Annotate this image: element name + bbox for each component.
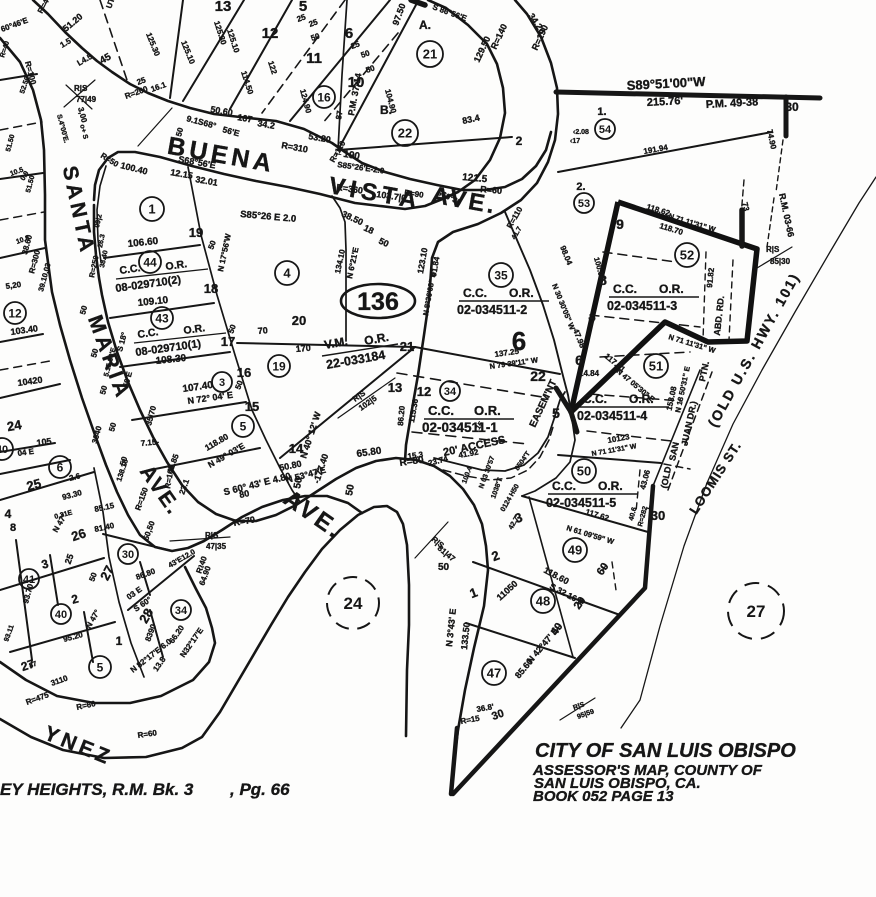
- svg-text:50.60: 50.60: [210, 104, 234, 118]
- svg-text:C.C.: C.C.: [463, 286, 487, 300]
- svg-text:16: 16: [317, 90, 331, 104]
- svg-text:3110: 3110: [50, 673, 70, 688]
- svg-text:C.C.: C.C.: [552, 479, 576, 493]
- svg-text:95.20: 95.20: [62, 630, 84, 644]
- svg-text:170: 170: [295, 343, 311, 354]
- svg-text:24: 24: [344, 594, 363, 613]
- svg-text:R=15: R=15: [460, 714, 481, 726]
- svg-text:N 6°21'E: N 6°21'E: [345, 246, 361, 280]
- svg-text:115.36: 115.36: [407, 398, 420, 424]
- svg-text:51.20: 51.20: [61, 11, 85, 33]
- svg-text:30: 30: [785, 100, 799, 114]
- svg-text:85.15: 85.15: [94, 501, 116, 514]
- svg-text:0124 H50: 0124 H50: [500, 483, 521, 513]
- svg-text:77|49: 77|49: [76, 95, 97, 104]
- svg-text:40: 40: [55, 609, 67, 621]
- svg-text:EASEM'NT: EASEM'NT: [528, 378, 560, 429]
- svg-text:26: 26: [69, 525, 87, 544]
- svg-text:17: 17: [221, 334, 235, 349]
- svg-text:47|35: 47|35: [206, 542, 227, 551]
- svg-text:R=70: R=70: [233, 514, 256, 528]
- svg-text:50: 50: [344, 483, 357, 496]
- svg-text:87: 87: [28, 661, 38, 670]
- svg-text:7: 7: [588, 314, 596, 330]
- svg-text:O.R.: O.R.: [165, 258, 188, 273]
- svg-text:25: 25: [350, 39, 362, 51]
- svg-text:S89°51'00"W: S89°51'00"W: [626, 74, 706, 93]
- svg-text:1: 1: [116, 634, 123, 648]
- svg-text:O.R.: O.R.: [659, 282, 684, 296]
- svg-text:86.20: 86.20: [396, 405, 407, 426]
- svg-text:20: 20: [292, 313, 306, 328]
- svg-text:6: 6: [57, 460, 64, 474]
- svg-text:50: 50: [87, 571, 99, 583]
- svg-text:93.30: 93.30: [61, 488, 83, 502]
- svg-text:134.10: 134.10: [333, 248, 347, 274]
- svg-text:3: 3: [40, 556, 50, 571]
- svg-text:S85°26'E-2.0: S85°26'E-2.0: [337, 160, 386, 176]
- svg-text:65.80: 65.80: [356, 446, 383, 460]
- svg-text:25: 25: [25, 476, 43, 494]
- svg-text:R|S: R|S: [74, 84, 88, 93]
- svg-text:12: 12: [262, 25, 279, 42]
- svg-text:O.R.: O.R.: [598, 479, 623, 493]
- svg-text:02-034511-4: 02-034511-4: [577, 409, 647, 423]
- svg-text:1: 1: [148, 202, 155, 217]
- svg-text:C.C.: C.C.: [137, 326, 160, 341]
- svg-text:12: 12: [8, 306, 22, 320]
- svg-text:167: 167: [237, 112, 254, 124]
- svg-text:6: 6: [575, 352, 583, 368]
- svg-text:C.C.: C.C.: [119, 262, 142, 277]
- svg-text:51.50: 51.50: [5, 134, 16, 153]
- svg-text:53.20: 53.20: [308, 131, 332, 145]
- svg-text:6: 6: [345, 25, 353, 42]
- svg-text:R=60: R=60: [480, 184, 503, 196]
- svg-text:50: 50: [78, 304, 89, 315]
- svg-text:47.98: 47.98: [571, 327, 587, 349]
- svg-text:19: 19: [189, 225, 203, 240]
- svg-text:5: 5: [240, 419, 247, 433]
- svg-text:2: 2: [70, 591, 80, 606]
- svg-text:18: 18: [362, 223, 375, 236]
- svg-text:26.3: 26.3: [97, 234, 107, 249]
- svg-text:121.5: 121.5: [462, 172, 488, 185]
- svg-text:25: 25: [308, 17, 320, 29]
- svg-text:C.C.: C.C.: [428, 403, 454, 418]
- svg-text:122: 122: [266, 60, 279, 76]
- svg-text:+: +: [647, 504, 653, 515]
- svg-text:53: 53: [578, 198, 590, 210]
- svg-text:15: 15: [245, 399, 259, 414]
- svg-text:N 40° 12' W: N 40° 12' W: [298, 410, 323, 459]
- svg-text:2.: 2.: [576, 181, 585, 193]
- svg-text:54: 54: [599, 124, 612, 136]
- svg-text:3,00: 3,00: [76, 106, 89, 124]
- svg-text:4: 4: [5, 507, 12, 521]
- svg-text:125.30: 125.30: [144, 31, 162, 58]
- svg-text:18: 18: [204, 281, 218, 296]
- svg-text:32.01: 32.01: [195, 174, 219, 188]
- svg-text:9: 9: [616, 216, 624, 232]
- svg-text:50: 50: [226, 323, 238, 335]
- svg-text:133.50: 133.50: [459, 622, 472, 650]
- svg-text:125.10: 125.10: [179, 39, 197, 66]
- svg-text:81.40: 81.40: [94, 521, 116, 534]
- svg-text:50: 50: [206, 239, 218, 251]
- svg-text:14.84: 14.84: [579, 369, 600, 378]
- svg-text:09|2: 09|2: [94, 214, 104, 229]
- svg-text:22-033184: 22-033184: [325, 348, 386, 372]
- svg-text:R.M. 03-66: R.M. 03-66: [777, 192, 796, 238]
- svg-text:50,50: 50,50: [141, 519, 156, 541]
- svg-text:123.10: 123.10: [415, 247, 429, 275]
- svg-text:10420: 10420: [17, 375, 43, 388]
- svg-text:R=190: R=190: [530, 23, 550, 51]
- svg-text:o+ S: o+ S: [78, 124, 89, 141]
- svg-text:215.76': 215.76': [647, 95, 684, 109]
- svg-text:2: 2: [489, 547, 501, 564]
- svg-text:N 8°36'08" E: N 8°36'08" E: [421, 272, 437, 317]
- svg-text:137.25: 137.25: [494, 347, 520, 359]
- svg-text:16: 16: [237, 365, 251, 380]
- svg-text:83.4: 83.4: [461, 113, 480, 126]
- svg-text:R=80: R=80: [399, 455, 425, 469]
- svg-text:124.90: 124.90: [298, 88, 313, 114]
- svg-text:50: 50: [438, 562, 450, 573]
- svg-text:23.74: 23.74: [427, 454, 449, 468]
- svg-text:L4.5: L4.5: [76, 52, 95, 68]
- svg-text:13: 13: [215, 0, 232, 15]
- svg-text:4: 4: [283, 266, 291, 281]
- svg-text:30: 30: [122, 549, 134, 561]
- svg-text:N 17°56'W: N 17°56'W: [216, 232, 233, 272]
- svg-text:106.60: 106.60: [127, 236, 159, 250]
- svg-text:BOOK 052 PAGE 13: BOOK 052 PAGE 13: [533, 788, 674, 805]
- svg-text:PTN.: PTN.: [697, 360, 711, 382]
- svg-text:02-034511-2: 02-034511-2: [457, 303, 527, 317]
- svg-text:11050: 11050: [495, 579, 520, 603]
- svg-text:50: 50: [577, 464, 591, 479]
- svg-text:12: 12: [417, 384, 431, 399]
- svg-text:R|S: R|S: [766, 245, 780, 254]
- svg-text:70: 70: [257, 325, 268, 336]
- svg-text:R=140: R=140: [489, 22, 509, 50]
- svg-text:25: 25: [63, 553, 76, 566]
- svg-text:105: 105: [36, 436, 52, 448]
- svg-text:100.4: 100.4: [461, 466, 474, 485]
- svg-text:50: 50: [365, 63, 377, 75]
- svg-text:7.15-: 7.15-: [140, 437, 159, 448]
- svg-text:34: 34: [444, 386, 457, 398]
- svg-text:C.C.: C.C.: [613, 282, 637, 296]
- svg-text:R=475: R=475: [25, 690, 51, 707]
- svg-text:S85°26 E 2.0: S85°26 E 2.0: [240, 209, 297, 225]
- svg-text:52: 52: [680, 248, 694, 263]
- svg-text:138.18: 138.18: [114, 458, 130, 483]
- svg-text:O.R.: O.R.: [183, 322, 206, 337]
- svg-text:5: 5: [552, 405, 560, 421]
- svg-text:22: 22: [398, 126, 412, 141]
- svg-text:‹17: ‹17: [570, 138, 580, 145]
- svg-text:87: 87: [334, 109, 345, 120]
- svg-text:S 86°56'E: S 86°56'E: [431, 2, 468, 23]
- svg-text:UT: UT: [104, 0, 116, 10]
- svg-text:S.4°00'E.: S.4°00'E.: [55, 113, 70, 143]
- svg-text:38.40: 38.40: [99, 250, 110, 269]
- svg-text:1.: 1.: [597, 106, 606, 118]
- svg-text:43: 43: [155, 311, 169, 325]
- svg-text:114.50: 114.50: [239, 70, 255, 96]
- svg-text:16.1: 16.1: [150, 80, 168, 94]
- svg-text:136: 136: [357, 288, 399, 316]
- svg-text:R=310: R=310: [281, 140, 309, 154]
- svg-text:50: 50: [377, 236, 390, 249]
- svg-text:80: 80: [238, 488, 250, 500]
- svg-text:22: 22: [530, 368, 546, 384]
- svg-text:49: 49: [568, 543, 582, 558]
- svg-text:A.: A.: [419, 18, 431, 32]
- svg-text:21: 21: [400, 339, 414, 354]
- svg-text:24: 24: [6, 417, 24, 434]
- svg-text:02-034511-3: 02-034511-3: [607, 299, 677, 313]
- svg-text:1038'T: 1038'T: [490, 476, 504, 499]
- svg-text:(OLD: (OLD: [659, 465, 673, 489]
- svg-text:85|30: 85|30: [770, 257, 791, 266]
- svg-text:93.11: 93.11: [3, 624, 15, 643]
- svg-text:48: 48: [536, 594, 550, 609]
- svg-text:50: 50: [107, 421, 118, 432]
- svg-text:ABD. RD.: ABD. RD.: [712, 295, 726, 336]
- svg-text:74.90: 74.90: [765, 129, 778, 151]
- svg-text:O.R.: O.R.: [509, 286, 534, 300]
- svg-text:N 03 30'57: N 03 30'57: [478, 455, 496, 489]
- svg-text:YNEZ: YNEZ: [41, 722, 116, 770]
- svg-text:LOOMIS ST.: LOOMIS ST.: [686, 438, 744, 516]
- svg-text:30: 30: [651, 508, 665, 523]
- svg-text:R|S: R|S: [205, 531, 219, 540]
- svg-text:P.M. 49-38: P.M. 49-38: [706, 96, 759, 111]
- svg-text:9.1S68°: 9.1S68°: [185, 113, 217, 131]
- svg-text:98.04: 98.04: [558, 244, 574, 266]
- svg-text:44: 44: [143, 255, 157, 269]
- svg-text:C.C.: C.C.: [583, 392, 607, 406]
- svg-text:19: 19: [272, 359, 286, 373]
- svg-text:8: 8: [10, 522, 16, 534]
- svg-text:R=60: R=60: [137, 728, 158, 740]
- svg-text:11: 11: [306, 50, 322, 67]
- svg-text:2.6: 2.6: [68, 471, 82, 483]
- svg-text:13: 13: [388, 380, 402, 395]
- svg-text:, Pg. 66: , Pg. 66: [229, 780, 290, 799]
- svg-text:‹2.08: ‹2.08: [573, 129, 589, 136]
- svg-text:40: 40: [0, 444, 8, 456]
- svg-text:91.82: 91.82: [705, 267, 716, 288]
- svg-text:3: 3: [219, 377, 225, 389]
- svg-text:5: 5: [97, 660, 104, 674]
- svg-text:108.30: 108.30: [155, 353, 187, 367]
- svg-text:N 3°43' E: N 3°43' E: [444, 608, 458, 647]
- svg-text:34.2: 34.2: [257, 118, 276, 131]
- svg-text:N 71 11'31" W: N 71 11'31" W: [591, 443, 637, 458]
- svg-text:50: 50: [310, 31, 322, 43]
- svg-text:S 60° 43' E 4.80: S 60° 43' E 4.80: [223, 471, 293, 498]
- svg-text:56'E: 56'E: [221, 124, 240, 138]
- svg-text:81|47: 81|47: [436, 544, 458, 564]
- svg-text:1: 1: [467, 584, 479, 601]
- svg-text:97.50: 97.50: [390, 2, 407, 27]
- svg-text:35: 35: [494, 268, 508, 282]
- svg-text:R|S: R|S: [572, 701, 586, 712]
- svg-text:34: 34: [175, 605, 188, 617]
- svg-text:38.50: 38.50: [340, 209, 365, 228]
- svg-text:2: 2: [516, 134, 523, 148]
- svg-text:100.40: 100.40: [120, 160, 149, 176]
- svg-text:02-034511-1: 02-034511-1: [422, 420, 498, 435]
- svg-text:21: 21: [423, 47, 437, 62]
- svg-text:CITY OF SAN LUIS OBISPO: CITY OF SAN LUIS OBISPO: [535, 740, 796, 762]
- svg-text:N 30 30'05" W: N 30 30'05" W: [550, 282, 577, 332]
- svg-text:27: 27: [747, 602, 766, 621]
- svg-text:02-034511-5: 02-034511-5: [546, 496, 616, 510]
- svg-text:O.R.: O.R.: [474, 403, 501, 418]
- svg-text:12.15: 12.15: [170, 167, 194, 181]
- svg-text:5,20: 5,20: [5, 280, 22, 291]
- svg-text:50: 50: [360, 48, 372, 60]
- svg-text:51: 51: [649, 359, 663, 374]
- svg-text:47: 47: [487, 666, 501, 681]
- svg-text:EY HEIGHTS, R.M. Bk. 3: EY HEIGHTS, R.M. Bk. 3: [0, 780, 194, 799]
- svg-text:40.6: 40.6: [628, 506, 638, 521]
- svg-text:04 E: 04 E: [17, 447, 35, 458]
- svg-text:08-029710(2): 08-029710(2): [115, 274, 182, 295]
- svg-text:V.M.: V.M.: [323, 334, 349, 352]
- svg-text:60°46'E: 60°46'E: [0, 16, 30, 34]
- svg-text:R=150: R=150: [133, 486, 150, 512]
